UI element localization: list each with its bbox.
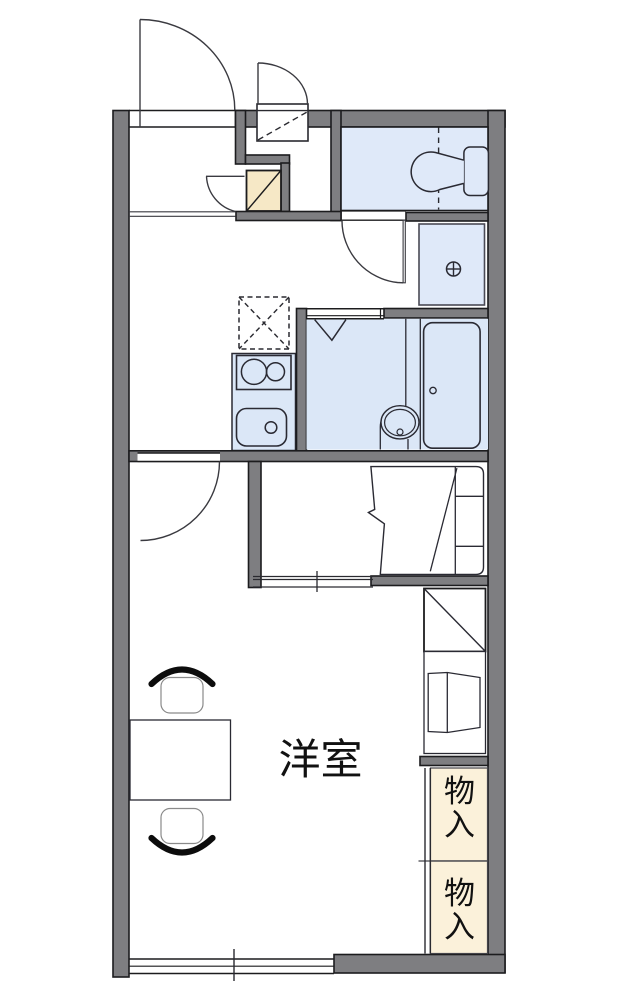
- svg-text:入: 入: [444, 910, 475, 945]
- svg-text:物: 物: [444, 774, 475, 809]
- svg-text:物: 物: [444, 876, 475, 911]
- svg-text:洋室: 洋室: [278, 736, 362, 783]
- svg-text:入: 入: [444, 808, 475, 843]
